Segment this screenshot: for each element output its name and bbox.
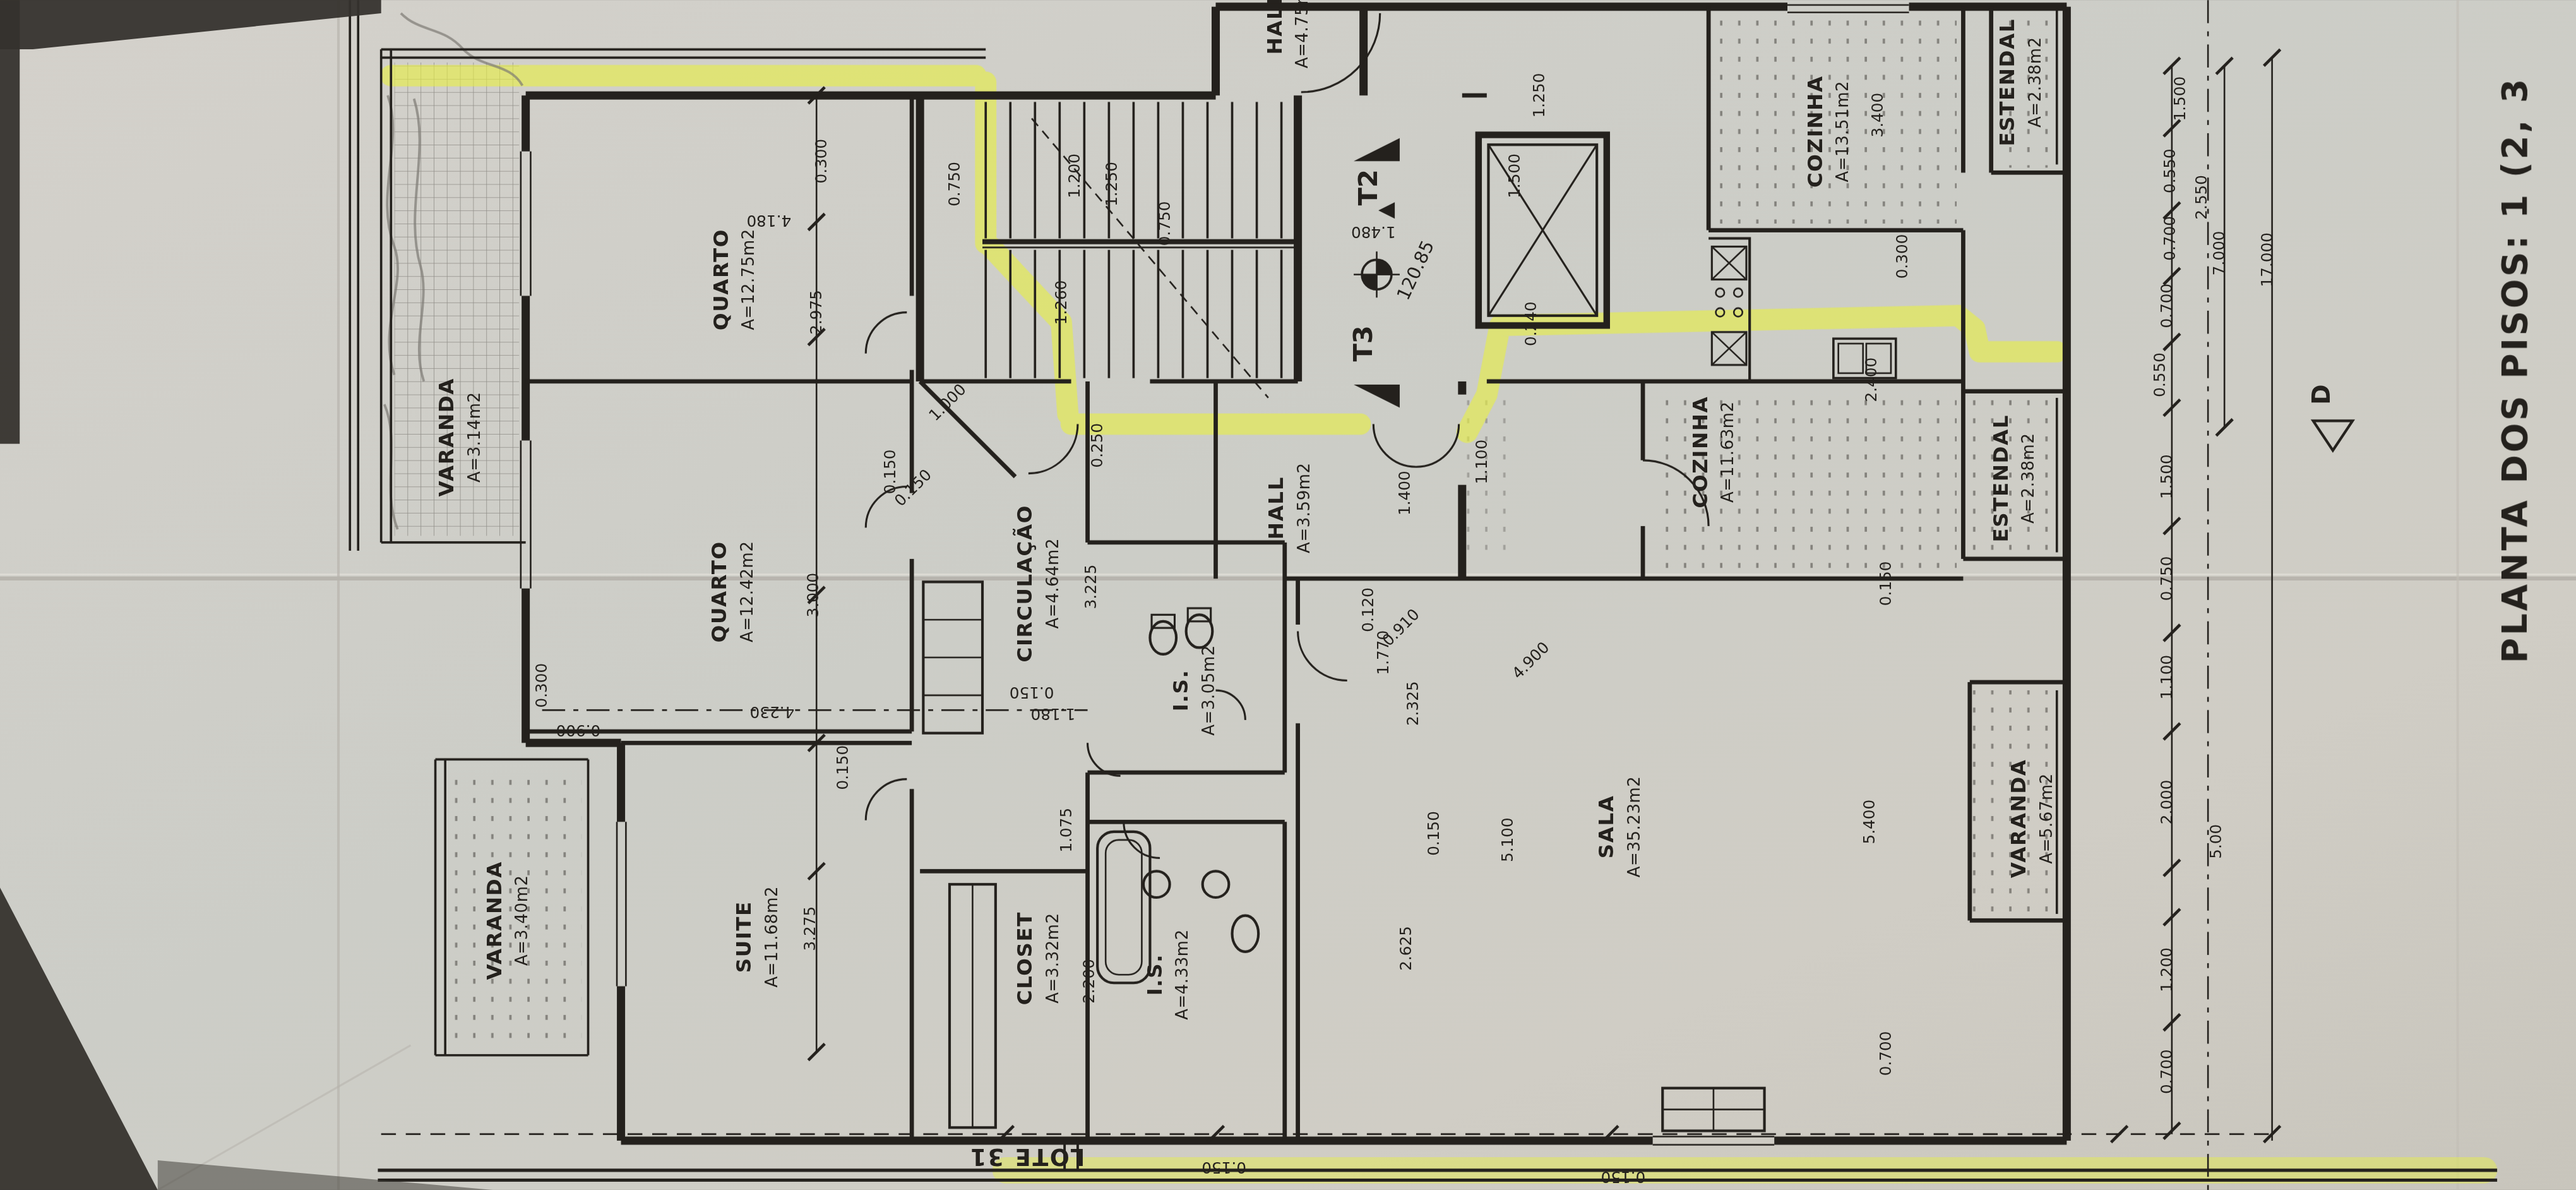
- room-area-label: A=3.05m2: [1199, 645, 1218, 736]
- room-label: ESTENDAL: [1995, 18, 2019, 147]
- dimension-label: 0.700: [2157, 1049, 2176, 1094]
- dimension-label: 0.300: [1893, 234, 1911, 279]
- room-label: VARANDA: [482, 861, 506, 980]
- dimension-label: 1.500: [1505, 153, 1524, 198]
- dimension-label: 0.150: [1010, 683, 1054, 702]
- room-label: COZINHA: [1688, 396, 1712, 508]
- dimension-label: 2.625: [1397, 926, 1415, 971]
- apartment-t2-label: T2: [1352, 169, 1383, 205]
- dimension-label: 0.150: [833, 745, 852, 790]
- room-area-label: A=3.32m2: [1043, 913, 1062, 1004]
- room-label: COZINHA: [1803, 75, 1827, 188]
- dimension-label: 0.550: [2150, 352, 2169, 397]
- dimension-label: 2.325: [1404, 681, 1422, 726]
- dimension-label: 5.400: [1860, 800, 1878, 844]
- dimension-label: 0.700: [2157, 284, 2176, 328]
- room-label: QUARTO: [707, 541, 731, 642]
- dimension-label: 0.240: [1522, 301, 1540, 346]
- dimension-label: 2.400: [1862, 358, 1880, 402]
- room-label: VARANDA: [434, 378, 458, 497]
- room-label: QUARTO: [709, 229, 733, 330]
- room-label: I.S.: [1143, 954, 1167, 995]
- dimension-label: 0.900: [556, 721, 601, 740]
- room-area-label: A=3.40m2: [512, 875, 531, 966]
- dimension-label: 1.075: [1057, 808, 1075, 853]
- room-label: HALL: [1263, 0, 1287, 55]
- dimension-label: 0.700: [1876, 1031, 1895, 1076]
- room-area-label: A=13.51m2: [1833, 81, 1852, 183]
- room-area-label: A=2.38m2: [2018, 433, 2037, 524]
- room-area-label: A=4.33m2: [1172, 929, 1191, 1020]
- dimension-label: 2.975: [807, 290, 825, 335]
- floor-plan-photo: PLANTA DOS PISOS: 1 (2, 3 LOTE 31 T2 T3 …: [0, 0, 2576, 1190]
- dimension-label: 1.250: [1102, 162, 1121, 207]
- room-area-label: A=5.67m2: [2037, 773, 2056, 864]
- dimension-label: 1.260: [1052, 280, 1070, 325]
- room-label: VARANDA: [2007, 759, 2030, 879]
- dimension-label: 4.180: [746, 212, 791, 230]
- dimension-label: 0.750: [2157, 556, 2176, 601]
- apartment-t3-label: T3: [1347, 325, 1378, 361]
- room-area-label: A=12.75m2: [739, 229, 758, 330]
- dimension-label: 0.300: [812, 139, 830, 184]
- room-label: CLOSET: [1013, 911, 1037, 1005]
- dimension-label: 1.250: [1530, 73, 1548, 118]
- dimension-label: 1.480: [1351, 223, 1396, 241]
- room-label: CIRCULAÇÃO: [1013, 505, 1037, 662]
- dimension-label: 17.000: [2258, 232, 2276, 287]
- dimension-label: 1.100: [2157, 655, 2176, 700]
- dimension-label: 7.000: [2210, 231, 2228, 275]
- dimension-label: 0.750: [945, 162, 963, 207]
- room-area-label: A=4.64m2: [1043, 538, 1062, 629]
- dimension-label: 0.120: [1359, 587, 1377, 632]
- room-label: SUITE: [732, 901, 756, 973]
- room-area-label: A=11.68m2: [762, 886, 781, 988]
- room-area-label: A=4.75m2: [1292, 0, 1311, 68]
- dimension-label: 0.550: [2161, 148, 2179, 193]
- dimension-label: 1.500: [2171, 76, 2189, 121]
- dimension-label: 3.225: [1082, 565, 1100, 610]
- room-label: SALA: [1594, 795, 1618, 859]
- dimension-label: 1.770: [1374, 630, 1392, 675]
- room-area-label: A=3.14m2: [465, 392, 484, 483]
- dimension-label: 2.200: [1080, 959, 1098, 1004]
- dimension-label: 0.250: [1088, 423, 1106, 468]
- dimension-label: 0.750: [1155, 201, 1174, 246]
- room-area-label: A=3.59m2: [1294, 462, 1313, 553]
- dimension-label: 1.180: [1031, 705, 1076, 723]
- room-label: HALL: [1264, 476, 1288, 539]
- room-area-label: A=12.42m2: [737, 541, 756, 642]
- dimension-label: 4.230: [750, 703, 795, 721]
- dimension-label: 3.000: [804, 573, 822, 618]
- dimension-label: 3.400: [1868, 93, 1887, 138]
- dimension-label: 1.500: [2157, 454, 2176, 499]
- dimension-label: 0.150: [1876, 561, 1895, 606]
- dimension-label: 5.100: [1498, 817, 1517, 862]
- plan-title: PLANTA DOS PISOS: 1 (2, 3: [2495, 76, 2535, 663]
- dimension-label: 1.200: [1065, 153, 1083, 198]
- lot-label: LOTE 31: [969, 1143, 1085, 1170]
- dimension-label: 0.150: [881, 449, 899, 494]
- dimension-label: 2.000: [2157, 779, 2176, 824]
- dimension-label: 1.200: [2157, 947, 2176, 992]
- dimension-label: 0.150: [1202, 1158, 1246, 1177]
- room-label: I.S.: [1169, 670, 1193, 711]
- dimension-label: 0.150: [1424, 811, 1443, 856]
- room-label: ESTENDAL: [1989, 414, 2013, 543]
- paper-background: [0, 0, 2576, 1190]
- dimension-label: 0.700: [2161, 216, 2179, 261]
- dimension-label: 0.300: [532, 663, 551, 708]
- room-area-label: A=35.23m2: [1625, 776, 1643, 878]
- dimension-label: 0.150: [1601, 1168, 1645, 1186]
- section-marker-d: D: [2307, 384, 2335, 404]
- dimension-label: 1.100: [1472, 440, 1491, 484]
- dimension-label: 5.00: [2207, 824, 2225, 859]
- room-area-label: A=11.63m2: [1718, 401, 1737, 503]
- dimension-label: 1.400: [1395, 471, 1414, 515]
- room-area-label: A=2.38m2: [2025, 37, 2044, 128]
- dimension-label: 2.550: [2192, 175, 2210, 220]
- dimension-label: 3.275: [801, 906, 819, 951]
